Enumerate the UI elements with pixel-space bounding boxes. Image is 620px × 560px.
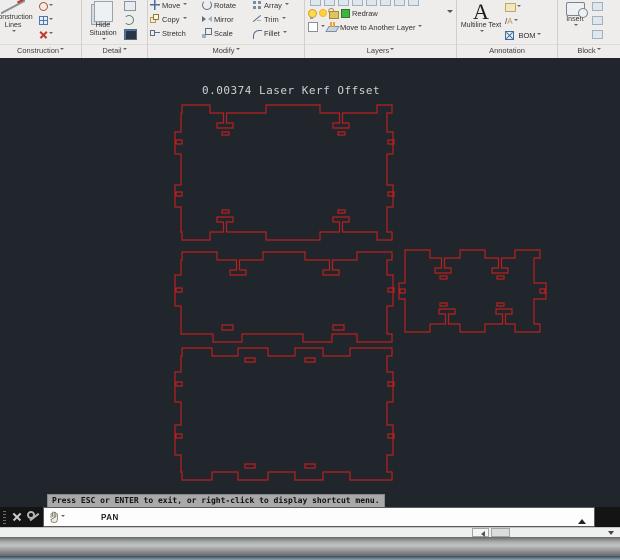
pan-tooltip-text: Press ESC or ENTER to exit, or right-cli…	[48, 495, 384, 507]
hide-situation-icon	[94, 1, 113, 22]
trim-icon	[252, 14, 262, 24]
grid-icon	[39, 16, 48, 25]
text-a-icon: A	[473, 1, 489, 22]
stretch-icon	[150, 28, 160, 38]
laser-cut-panels-drawing	[0, 62, 620, 507]
array-icon	[252, 0, 262, 10]
insert-block-button[interactable]: Insert	[560, 0, 590, 44]
monitor-icon	[124, 29, 137, 40]
page-icon	[124, 1, 136, 11]
layer-color-swatch[interactable]	[341, 9, 350, 18]
move-button[interactable]: Move	[148, 0, 200, 10]
detail-panel-label[interactable]: Detail	[82, 44, 147, 58]
insert-block-icon	[566, 2, 585, 16]
refresh-icon	[124, 15, 134, 25]
active-command-text: PAN	[101, 513, 119, 522]
bom-button[interactable]: BOM	[505, 29, 541, 41]
bom-table-icon	[505, 31, 514, 40]
scale-button[interactable]: Scale	[200, 28, 250, 38]
layer-thaw-sun-icon[interactable]	[319, 9, 327, 17]
leader-icon: /A	[505, 17, 513, 26]
rotate-icon	[202, 0, 212, 10]
fillet-button[interactable]: Fillet	[250, 28, 302, 38]
close-command-icon[interactable]	[9, 507, 25, 527]
move-to-layer-icon	[327, 22, 338, 32]
mirror-icon	[202, 14, 212, 24]
center-point-button[interactable]	[39, 0, 53, 12]
multiline-text-label: Multiline Text	[461, 22, 501, 30]
ribbon-panel-annotation: A Multiline Text /A BOM Annotation	[457, 0, 558, 58]
trim-button[interactable]: Trim	[250, 14, 302, 24]
block-tool-icon	[592, 16, 603, 25]
laser-panel-outline-bottom[interactable]	[175, 348, 394, 480]
pan-hand-icon	[48, 511, 60, 524]
layer-unlock-icon[interactable]	[329, 11, 339, 19]
move-icon	[150, 0, 160, 10]
command-input[interactable]: PAN	[43, 507, 595, 527]
stretch-button[interactable]: Stretch	[148, 28, 200, 38]
rotate-button[interactable]: Rotate	[200, 0, 250, 10]
construction-lines-label: Construction Lines	[0, 14, 37, 30]
leader-button[interactable]: /A	[505, 15, 541, 27]
view-display-button[interactable]	[124, 28, 137, 40]
ribbon-panel-detail: Hide Situation Detail	[82, 0, 148, 58]
block-tool-button[interactable]	[592, 14, 603, 26]
layer-state-row: Redraw	[308, 6, 453, 20]
ribbon-panel-block: Insert Block	[558, 0, 620, 58]
construction-grid-button[interactable]	[39, 14, 53, 26]
scroll-left-button[interactable]	[472, 528, 489, 537]
cad-application-window: Construction Lines Construction Hide Sit…	[0, 0, 620, 560]
command-history-expand-icon[interactable]	[578, 515, 586, 524]
pan-options-arrow[interactable]	[61, 515, 65, 519]
construction-panel-label[interactable]: Construction	[0, 44, 81, 58]
ribbon-toolbar: Construction Lines Construction Hide Sit…	[0, 0, 620, 58]
block-tool-button[interactable]	[592, 28, 603, 40]
copy-button[interactable]: Copy	[148, 14, 200, 24]
move-layer-row: Move to Another Layer	[308, 20, 453, 34]
modify-panel-label[interactable]: Modify	[148, 44, 304, 58]
layer-name-value[interactable]: Redraw	[352, 9, 378, 18]
mirror-button[interactable]: Mirror	[200, 14, 250, 24]
block-tool-icon	[592, 30, 603, 39]
layer-dropdown-arrow[interactable]	[447, 10, 453, 16]
command-bar-grip[interactable]	[0, 507, 9, 527]
taskbar-strip	[0, 537, 620, 556]
layers-panel-label[interactable]: Layers	[305, 44, 456, 58]
fillet-icon	[252, 28, 262, 38]
laser-panel-outline-small[interactable]	[399, 250, 546, 332]
laser-panel-outline-middle[interactable]	[175, 252, 394, 342]
laser-panel-outline-top[interactable]	[175, 105, 394, 240]
customize-wrench-icon[interactable]	[25, 507, 43, 527]
update-detail-button[interactable]	[124, 14, 137, 26]
command-bar: PAN	[0, 507, 620, 527]
red-x-icon	[39, 30, 48, 39]
ribbon-panel-construction: Construction Lines Construction	[0, 0, 82, 58]
hide-situation-button[interactable]: Hide Situation	[84, 0, 122, 44]
construction-lines-button[interactable]: Construction Lines	[0, 0, 37, 44]
array-button[interactable]: Array	[250, 0, 302, 10]
dimension-button[interactable]	[505, 1, 541, 13]
scale-icon	[202, 28, 212, 38]
layer-swatch-blank[interactable]	[308, 22, 318, 32]
center-point-icon	[39, 2, 48, 11]
detail-page-button[interactable]	[124, 0, 137, 12]
move-to-layer-label[interactable]: Move to Another Layer	[340, 23, 415, 32]
construction-line-icon	[1, 0, 25, 14]
multiline-text-button[interactable]: A Multiline Text	[459, 0, 503, 44]
hide-situation-label: Hide Situation	[84, 22, 122, 38]
drawing-canvas[interactable]: 0.00374 Laser Kerf Offset	[0, 58, 620, 507]
command-bar-end	[595, 507, 620, 527]
ribbon-panel-modify: Move Rotate Array Copy Mirror Trim Stret…	[148, 0, 305, 58]
erase-construction-button[interactable]	[39, 28, 53, 40]
scroll-thumb[interactable]	[491, 528, 510, 537]
copy-icon	[150, 14, 160, 24]
block-tool-button[interactable]	[592, 0, 603, 12]
ribbon-panel-layers: Redraw Move to Another Layer Layers	[305, 0, 457, 58]
block-panel-label[interactable]: Block	[558, 44, 620, 58]
block-tool-icon	[592, 2, 603, 11]
layer-on-bulb-icon[interactable]	[308, 9, 317, 18]
annotation-panel-label[interactable]: Annotation	[457, 44, 557, 58]
dimension-icon	[505, 3, 516, 12]
move-layer-dropdown-arrow[interactable]	[418, 25, 422, 29]
bottom-edge-strip	[0, 556, 620, 560]
